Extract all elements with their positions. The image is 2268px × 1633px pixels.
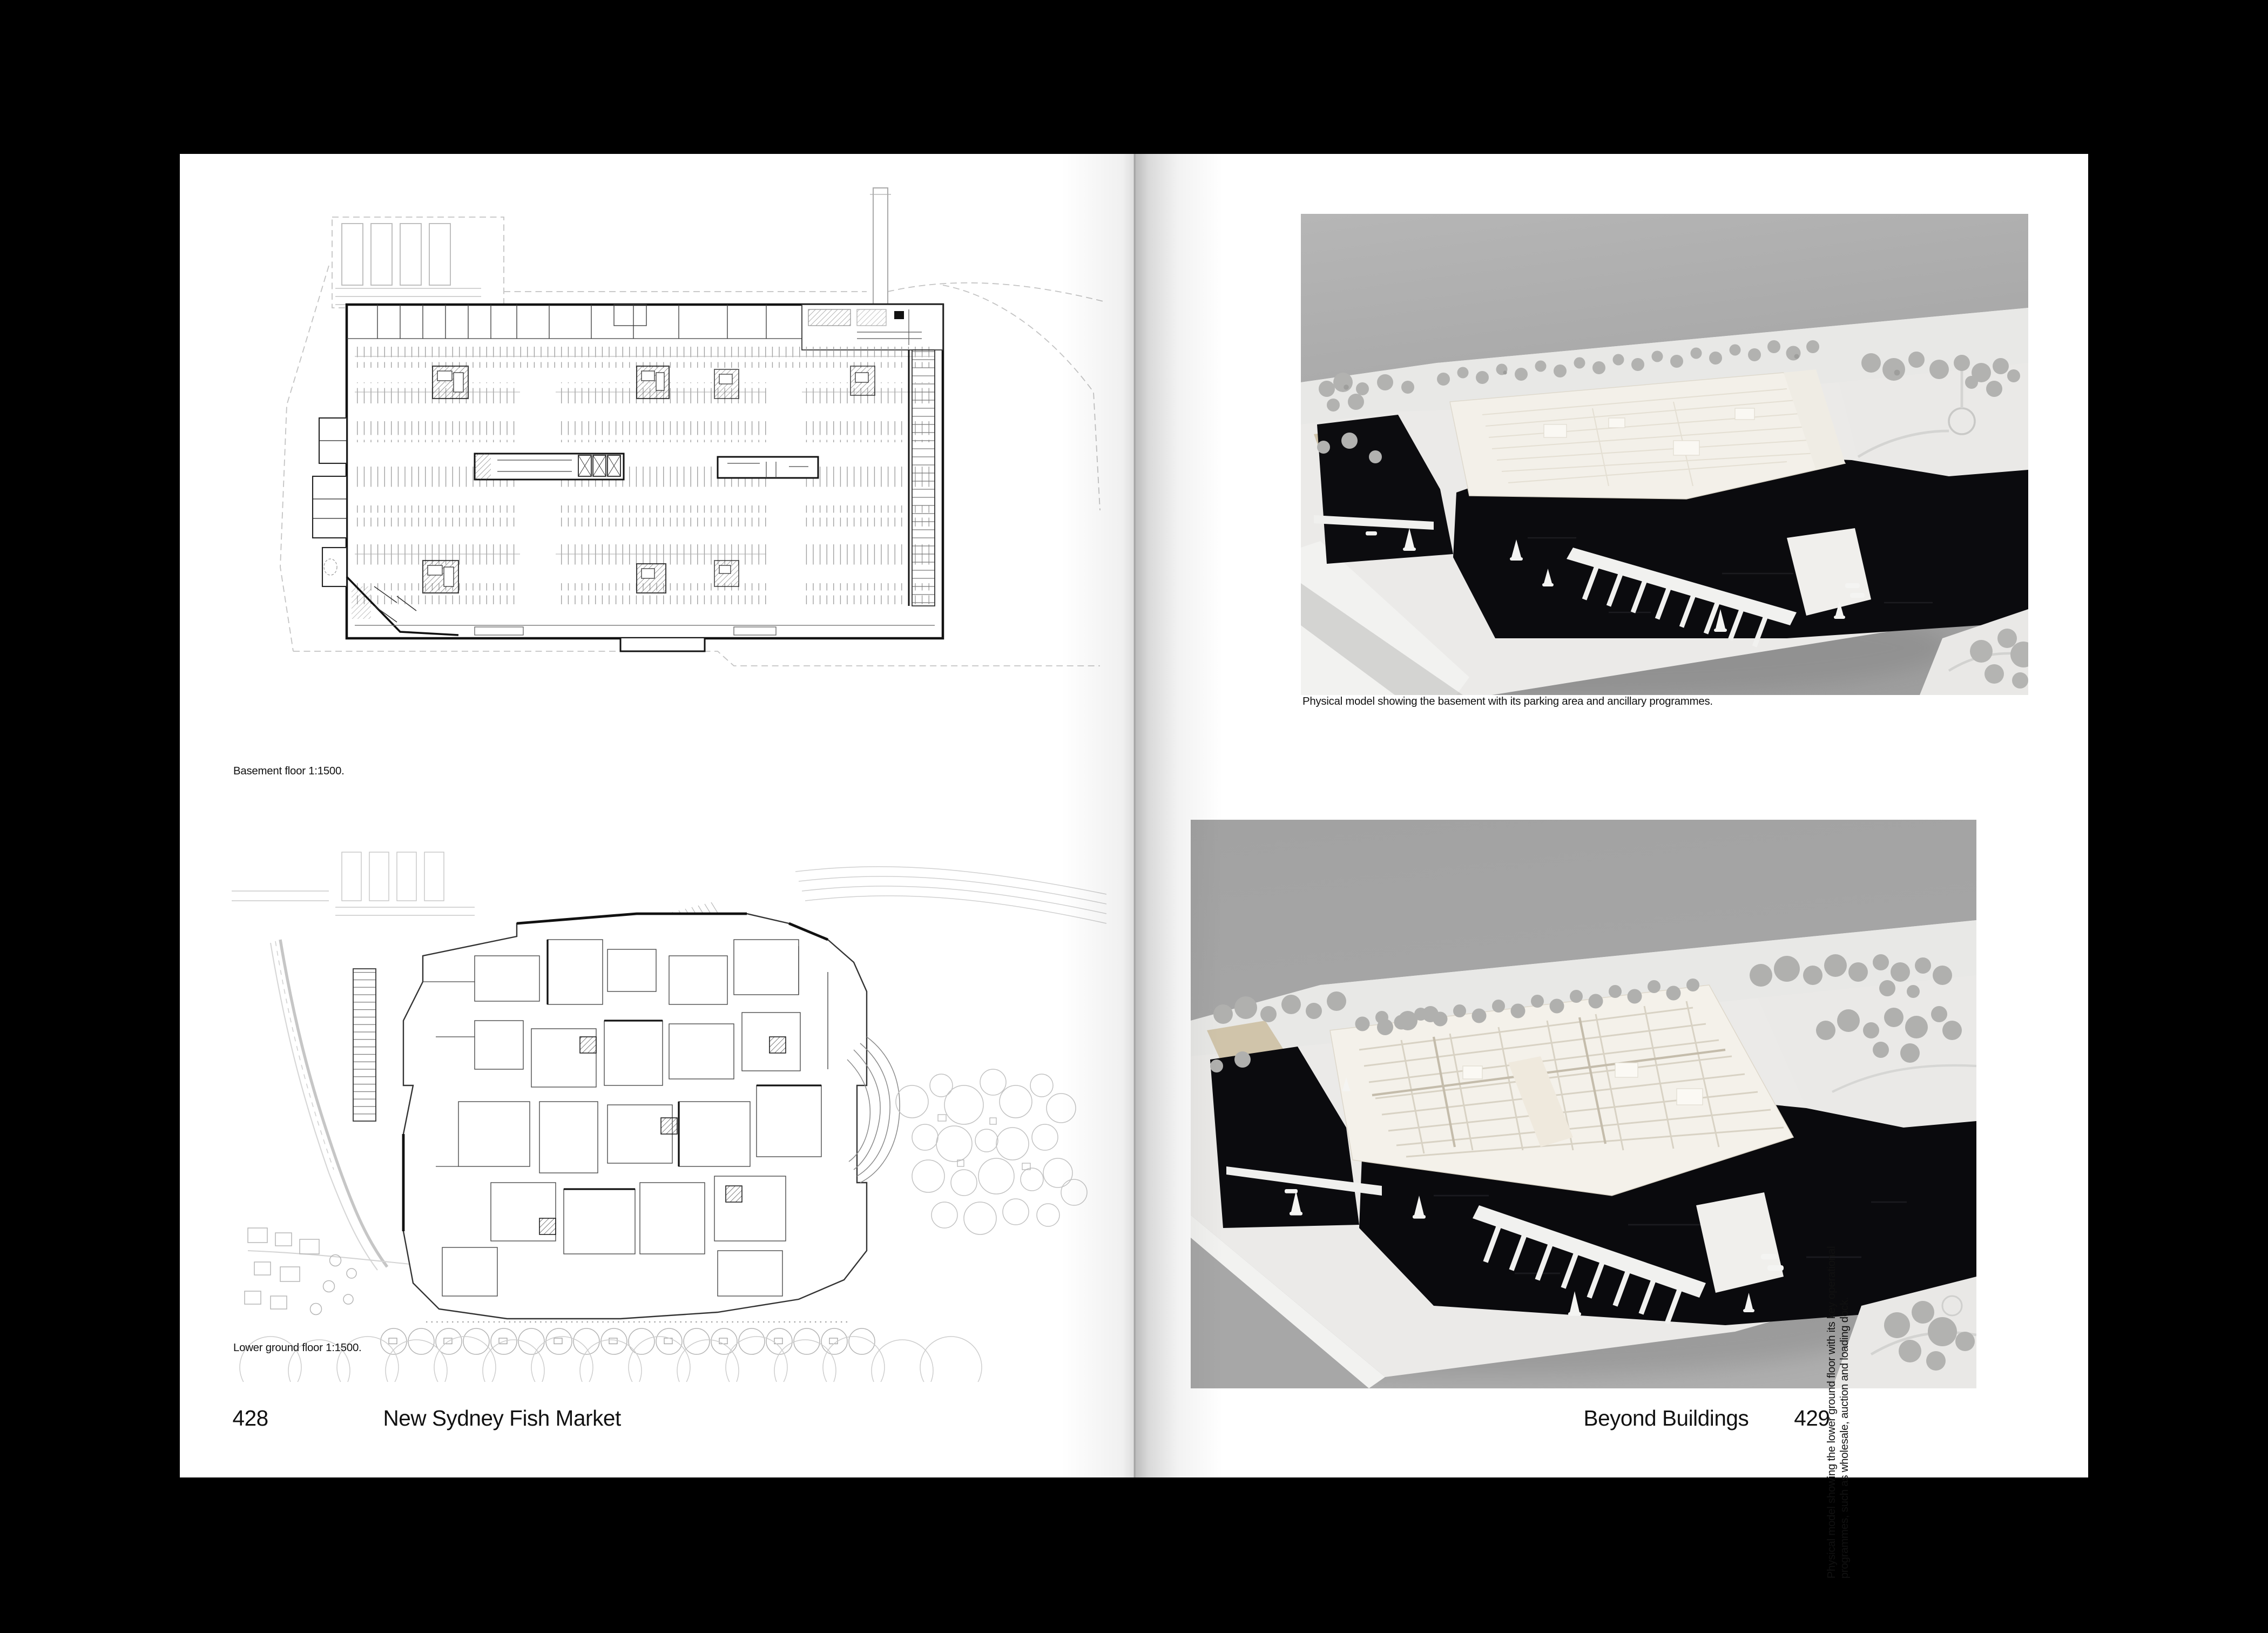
basement-plan-figure <box>232 178 1106 692</box>
terrace-lines <box>795 867 1106 923</box>
wharf-bays <box>335 224 481 305</box>
lower-ground-plan-drawing <box>232 842 1106 1382</box>
page-right: Physical model showing the basement with… <box>1134 154 2088 1477</box>
model-photo-basement-image <box>1301 214 2028 695</box>
service-cluster <box>802 305 943 350</box>
lower-ground-building-outline <box>403 914 867 1319</box>
model-photo-lower-ground <box>1191 820 1976 1388</box>
model-photo-basement-caption: Physical model showing the basement with… <box>1302 697 1713 710</box>
book-gutter-shadow <box>1061 154 1223 1477</box>
right-ramp-strip <box>909 350 935 606</box>
right-land <box>1839 363 2028 476</box>
stair-ladder <box>353 969 376 1121</box>
page-number-left: 428 <box>233 1406 268 1430</box>
model-photo-lower-ground-image <box>1191 820 1976 1388</box>
tree-cluster-right <box>896 1069 1087 1234</box>
tree-row-small <box>381 1328 875 1354</box>
screenshot-stage: Basement floor 1:1500. <box>0 0 2268 1633</box>
basement-plan-caption: Basement floor 1:1500. <box>233 766 345 780</box>
book-spread: Basement floor 1:1500. <box>180 154 2088 1477</box>
left-wing-rooms <box>313 418 347 586</box>
wharf-context <box>232 852 475 915</box>
lower-ground-plan-caption: Lower ground floor 1:1500. <box>233 1343 362 1357</box>
model-photo-lower-ground-caption: Physical model showing the lower ground … <box>1827 1220 1853 1578</box>
page-number-right: 429 <box>1794 1406 1830 1430</box>
context-buildings <box>245 1228 356 1315</box>
chimney-outline <box>870 188 891 305</box>
model-photo-basement <box>1301 214 2028 695</box>
chapter-title-left: New Sydney Fish Market <box>383 1406 621 1430</box>
page-left: Basement floor 1:1500. <box>180 154 1134 1477</box>
lower-ground-plan-figure <box>232 842 1106 1382</box>
basement-plan-drawing <box>232 178 1106 692</box>
chapter-title-right: Beyond Buildings <box>1584 1406 1749 1430</box>
